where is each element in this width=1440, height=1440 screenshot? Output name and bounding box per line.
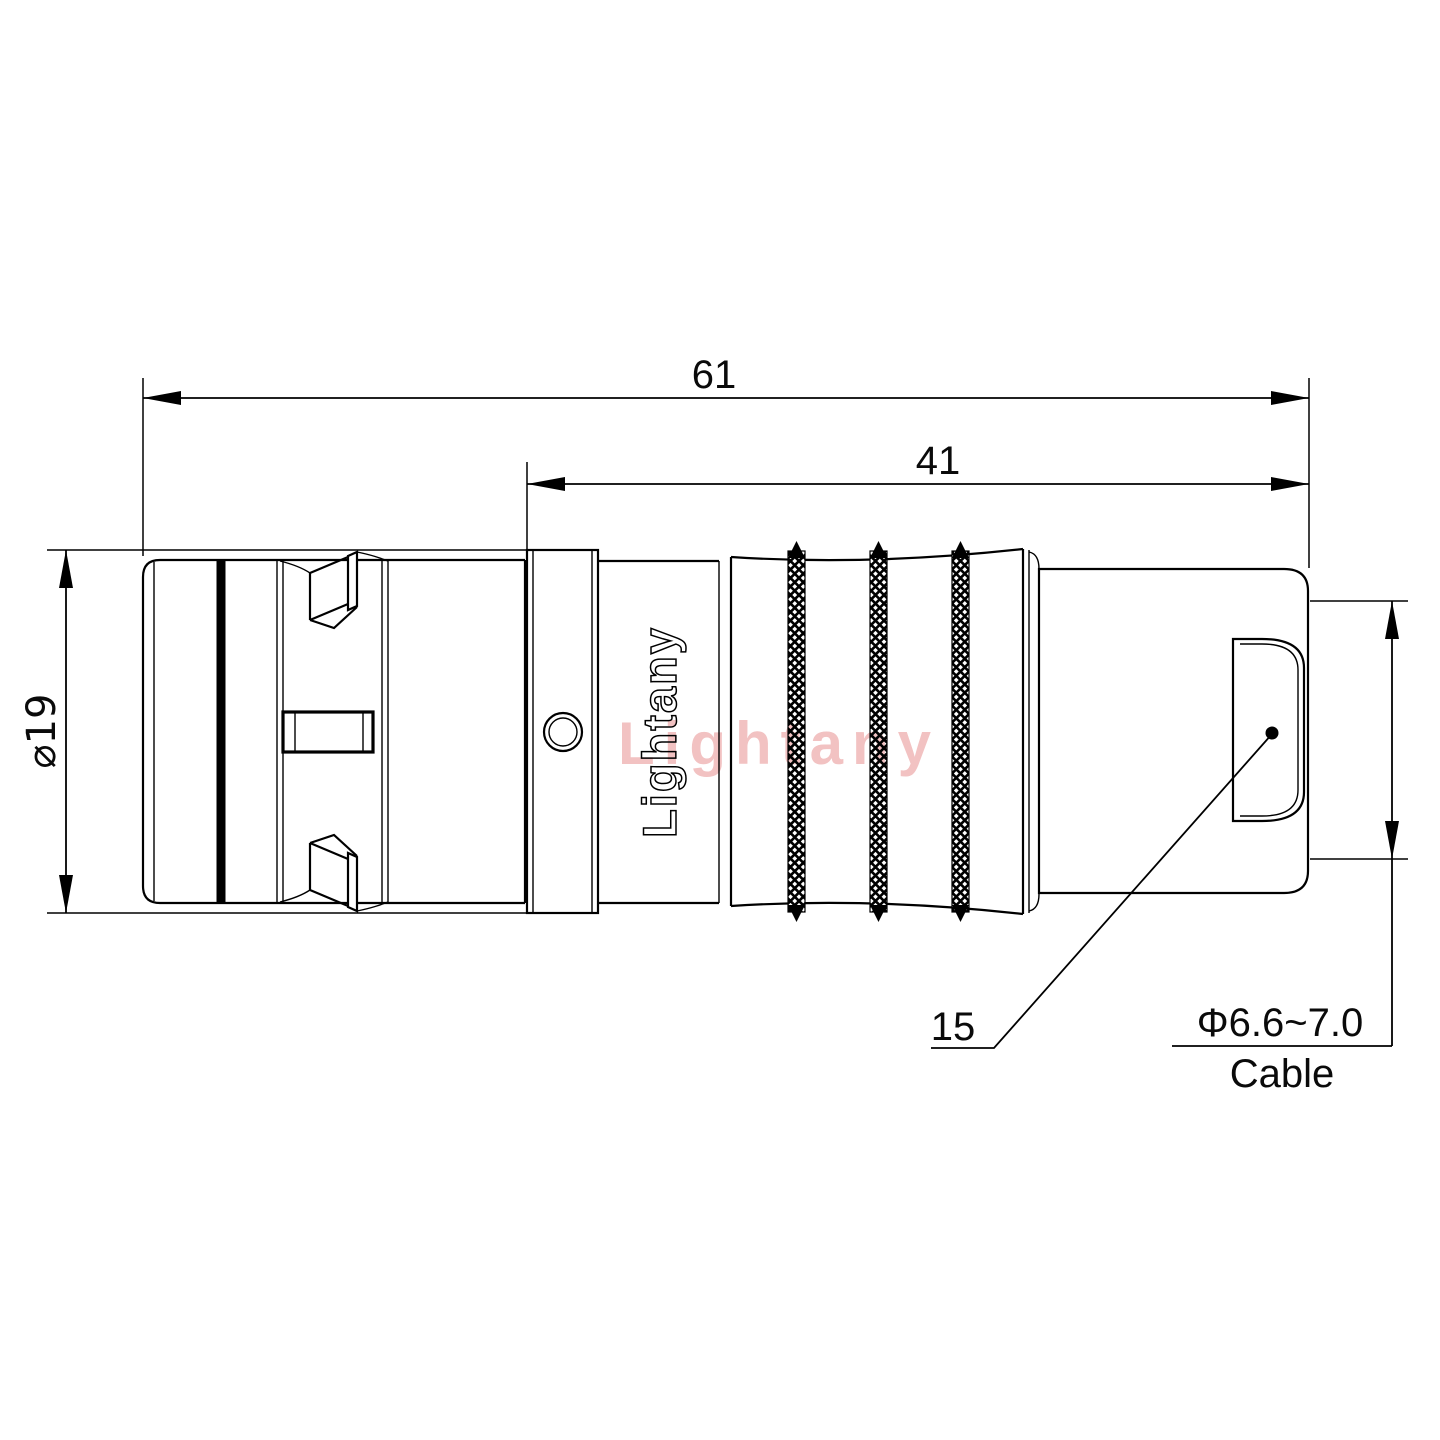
vent-hole-outer xyxy=(544,713,582,751)
dim61-arrow-right xyxy=(1271,391,1309,405)
coupling-nut-sleeve xyxy=(143,552,525,911)
sleeve-seal-band xyxy=(217,561,226,902)
knurl-band-2-bottom-tip xyxy=(870,905,887,922)
connector-drawing-canvas: Lightany xyxy=(0,0,1440,1440)
leader-target-dot xyxy=(1266,727,1279,740)
pin-top-bar xyxy=(348,552,357,610)
collar-flange xyxy=(527,550,598,913)
brand-watermark-text: Lightany xyxy=(618,710,940,777)
dimension-overall-length: 61 xyxy=(143,353,1309,568)
cable-dim-extension-lines xyxy=(1310,601,1408,859)
dim19-arrow-bottom xyxy=(59,875,73,913)
dim41-arrow-right xyxy=(1271,477,1309,491)
bayonet-window xyxy=(283,712,373,752)
dim41-label: 41 xyxy=(916,439,961,483)
knurl-band-1-top-tip xyxy=(788,541,805,558)
cable-dim-arrow-bottom xyxy=(1385,821,1399,859)
knurl-band-3-rect xyxy=(952,551,969,912)
dim61-label: 61 xyxy=(692,353,737,397)
bayonet-window-frame xyxy=(283,712,373,752)
dim41-arrow-left xyxy=(527,477,565,491)
knurl-band-3 xyxy=(952,541,969,922)
cable-dim-arrow-top xyxy=(1385,601,1399,639)
dim61-extension-lines xyxy=(143,378,1309,568)
dim61-arrow-left xyxy=(143,391,181,405)
dim19-label: ⌀19 xyxy=(19,694,65,769)
leader15-label: 15 xyxy=(931,1005,976,1049)
cable-diameter-label: Φ6.6~7.0 xyxy=(1197,1001,1363,1045)
technical-drawing-page: Lightany xyxy=(0,0,1440,1440)
knurl-band-1-bottom-tip xyxy=(788,905,805,922)
dim19-arrow-top xyxy=(59,550,73,588)
dimension-rear-length: 41 xyxy=(527,439,1309,549)
knurl-band-2-top-tip xyxy=(870,541,887,558)
grip-shoulders xyxy=(1029,552,1039,911)
knurl-band-3-top-tip xyxy=(952,541,969,558)
knurl-band-3-bottom-tip xyxy=(952,905,969,922)
cable-word-label: Cable xyxy=(1230,1052,1335,1096)
pin-bottom-bar xyxy=(348,853,357,911)
